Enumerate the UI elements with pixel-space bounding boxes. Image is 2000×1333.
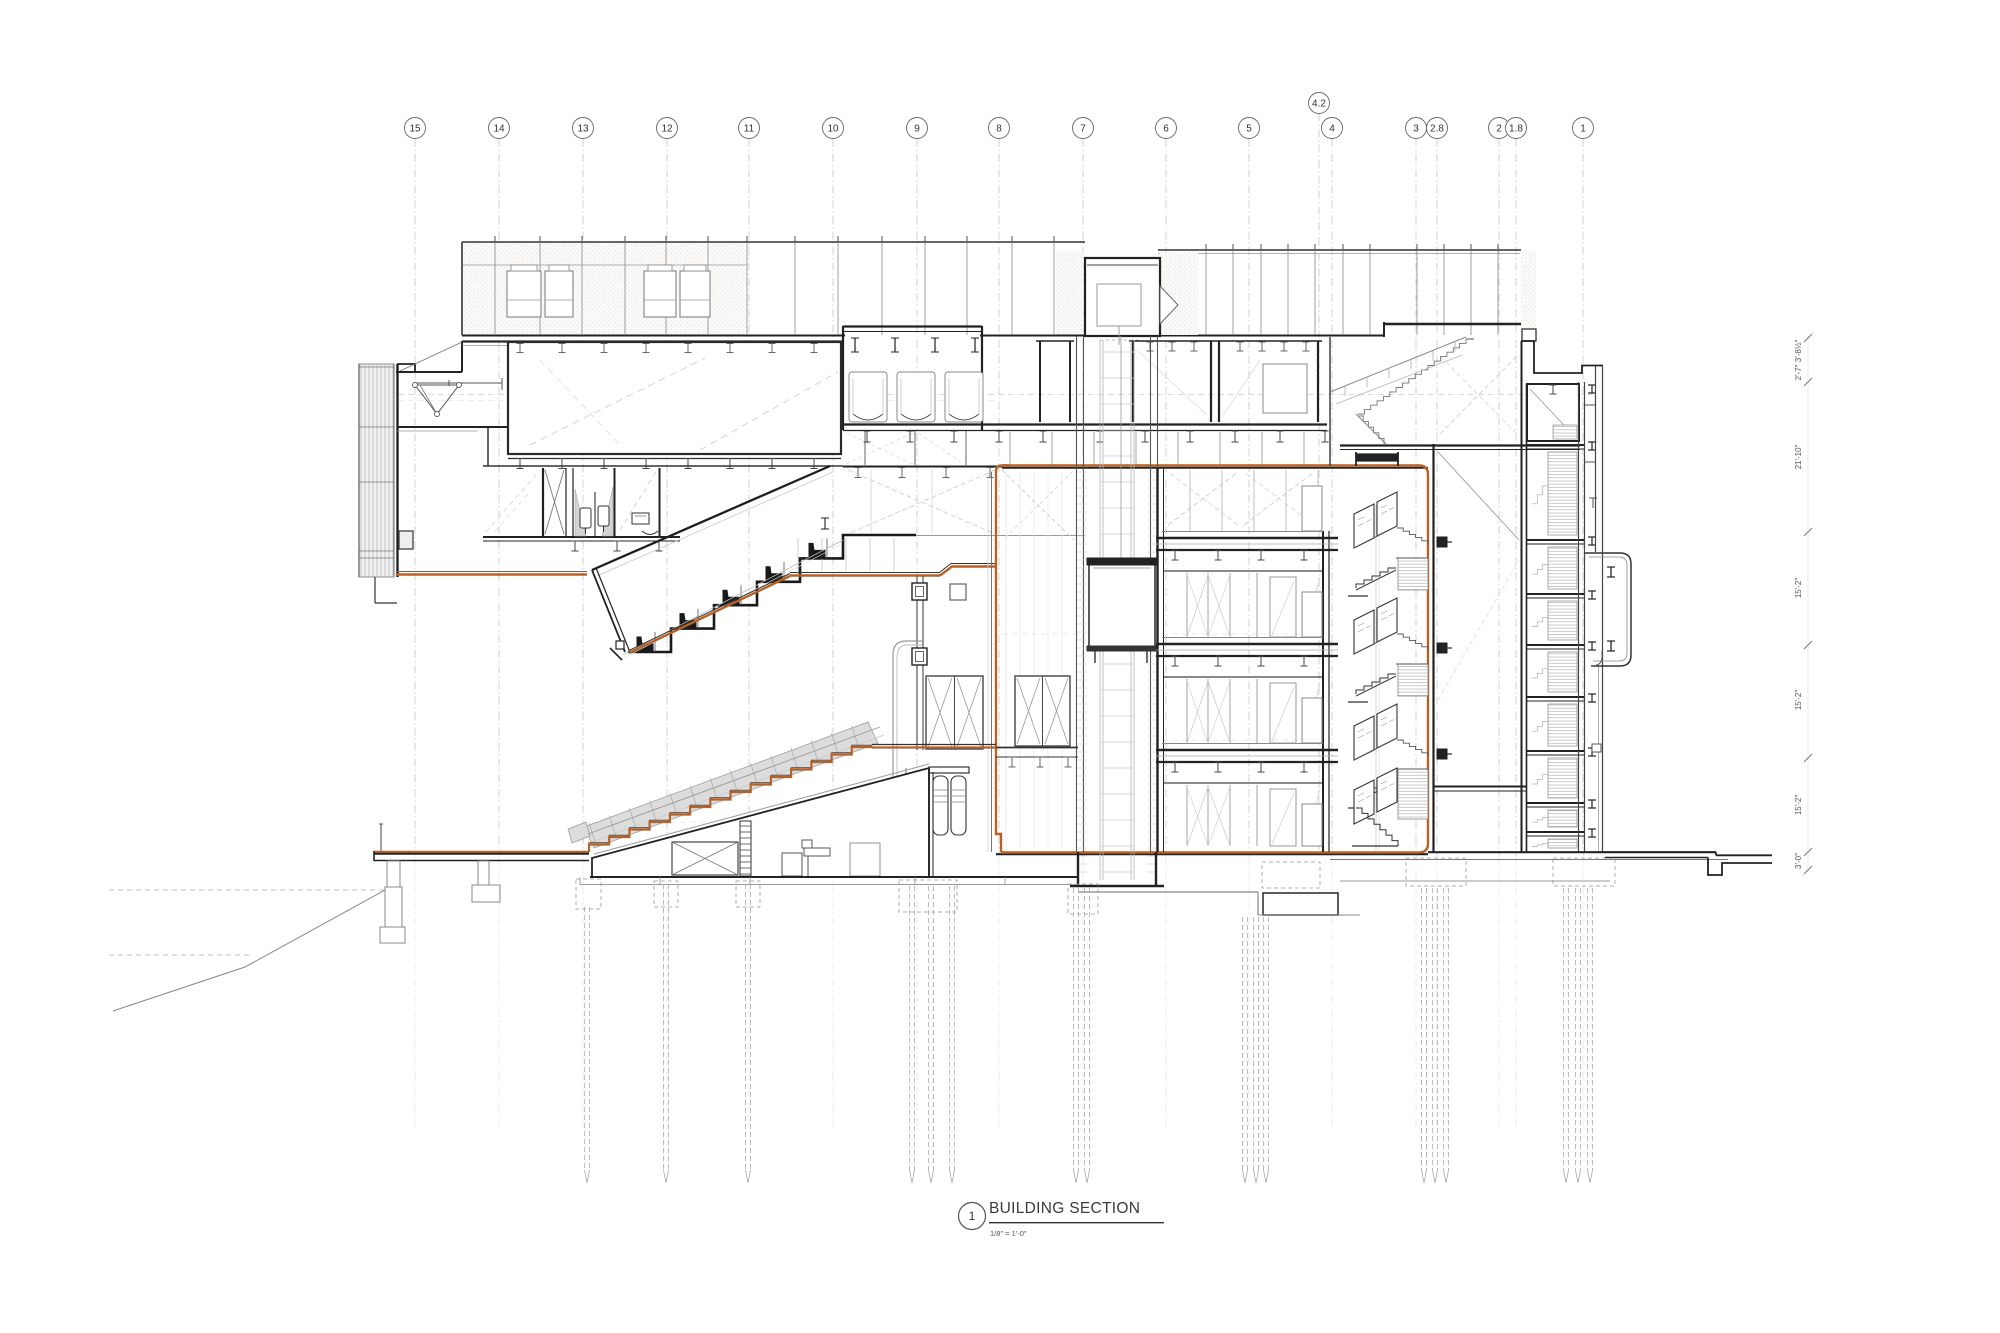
- svg-text:2′-7″ 3′-8½″: 2′-7″ 3′-8½″: [1794, 339, 1803, 380]
- svg-text:BUILDING SECTION: BUILDING SECTION: [989, 1200, 1140, 1217]
- svg-text:1: 1: [1580, 124, 1586, 135]
- svg-text:12: 12: [661, 124, 673, 135]
- svg-text:2: 2: [1496, 124, 1502, 135]
- svg-text:4: 4: [1329, 124, 1335, 135]
- svg-text:9: 9: [914, 124, 920, 135]
- svg-text:15: 15: [409, 124, 421, 135]
- svg-text:11: 11: [744, 124, 755, 135]
- svg-text:15′-2″: 15′-2″: [1794, 795, 1803, 816]
- svg-text:3: 3: [1413, 124, 1419, 135]
- svg-text:14: 14: [493, 124, 505, 135]
- svg-text:7: 7: [1080, 124, 1086, 135]
- svg-text:1/8″ = 1′-0″: 1/8″ = 1′-0″: [990, 1229, 1027, 1238]
- svg-text:1.8: 1.8: [1509, 124, 1523, 135]
- svg-text:13: 13: [577, 124, 589, 135]
- svg-text:2.8: 2.8: [1430, 124, 1444, 135]
- svg-text:15′-2″: 15′-2″: [1794, 578, 1803, 599]
- svg-text:6: 6: [1163, 124, 1169, 135]
- svg-text:8: 8: [996, 124, 1002, 135]
- svg-text:1: 1: [969, 1209, 976, 1223]
- svg-text:15′-2″: 15′-2″: [1794, 690, 1803, 711]
- svg-text:21′-10″: 21′-10″: [1794, 444, 1803, 469]
- svg-text:5: 5: [1246, 124, 1252, 135]
- svg-text:3′-0″: 3′-0″: [1794, 853, 1803, 869]
- svg-text:10: 10: [827, 124, 839, 135]
- svg-text:4.2: 4.2: [1312, 99, 1326, 110]
